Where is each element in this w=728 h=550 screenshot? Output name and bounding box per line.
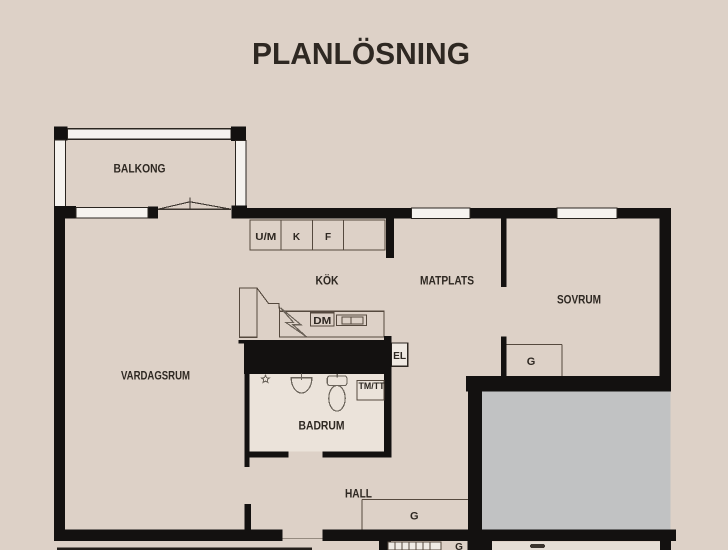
- svg-text:MATPLATS: MATPLATS: [420, 273, 474, 287]
- svg-text:EL: EL: [393, 351, 406, 362]
- svg-text:KÖK: KÖK: [316, 272, 339, 287]
- svg-text:PLANLÖSNING: PLANLÖSNING: [252, 36, 470, 71]
- svg-text:HALL: HALL: [345, 486, 372, 500]
- svg-text:G: G: [455, 542, 463, 550]
- svg-text:BALKONG: BALKONG: [114, 161, 166, 175]
- svg-text:G: G: [527, 356, 536, 368]
- svg-text:SOVRUM: SOVRUM: [557, 292, 601, 306]
- svg-text:BADRUM: BADRUM: [299, 418, 345, 432]
- svg-text:TM/TT: TM/TT: [359, 381, 385, 392]
- svg-text:F: F: [325, 232, 331, 243]
- svg-text:G: G: [410, 511, 419, 523]
- svg-text:U/M: U/M: [255, 232, 276, 243]
- svg-text:DM: DM: [313, 315, 331, 327]
- svg-text:K: K: [293, 232, 301, 243]
- svg-text:VARDAGSRUM: VARDAGSRUM: [121, 368, 190, 382]
